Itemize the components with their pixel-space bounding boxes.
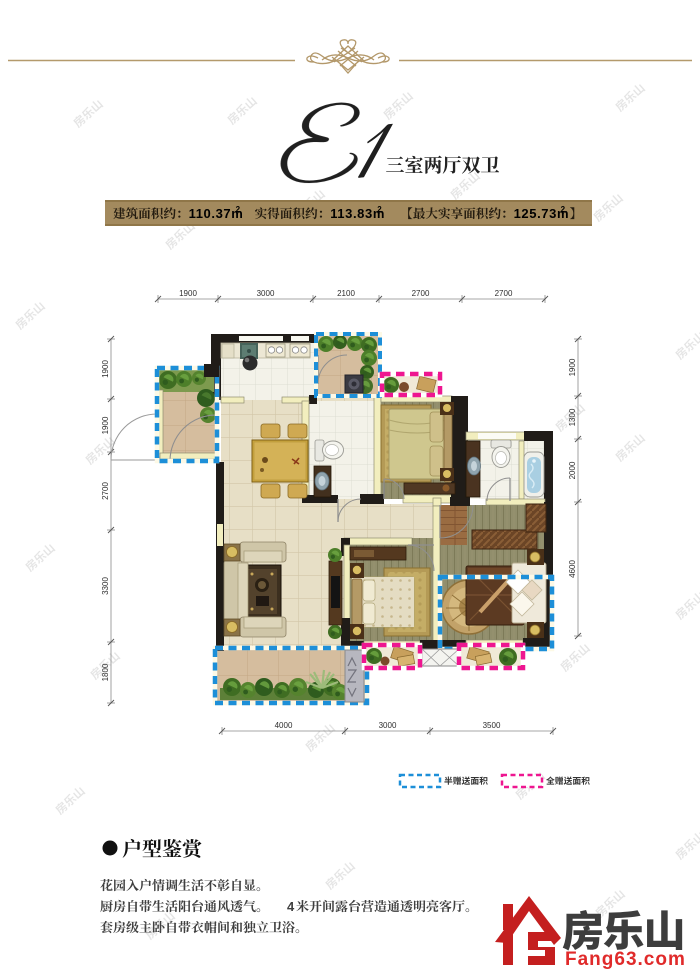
svg-text:2700: 2700 bbox=[412, 289, 430, 298]
svg-text:1900: 1900 bbox=[101, 416, 110, 434]
svg-text:4: 4 bbox=[287, 899, 295, 914]
svg-text:1800: 1800 bbox=[101, 663, 110, 681]
svg-text:2000: 2000 bbox=[568, 461, 577, 479]
svg-text:2: 2 bbox=[377, 205, 382, 214]
svg-text:1900: 1900 bbox=[568, 358, 577, 376]
svg-text:2700: 2700 bbox=[101, 482, 110, 500]
svg-text:1900: 1900 bbox=[101, 360, 110, 378]
svg-text:2: 2 bbox=[236, 205, 241, 214]
svg-text:2100: 2100 bbox=[337, 289, 355, 298]
svg-text:3300: 3300 bbox=[101, 577, 110, 595]
svg-text:4000: 4000 bbox=[275, 721, 293, 730]
svg-text:3000: 3000 bbox=[379, 721, 397, 730]
svg-text:3000: 3000 bbox=[257, 289, 275, 298]
svg-text:2700: 2700 bbox=[495, 289, 513, 298]
svg-text:1900: 1900 bbox=[179, 289, 197, 298]
svg-text:3500: 3500 bbox=[483, 721, 501, 730]
svg-text:1300: 1300 bbox=[568, 408, 577, 426]
svg-text:2: 2 bbox=[561, 205, 566, 214]
svg-text:Fang63.com: Fang63.com bbox=[565, 949, 686, 969]
svg-text:4600: 4600 bbox=[568, 560, 577, 578]
